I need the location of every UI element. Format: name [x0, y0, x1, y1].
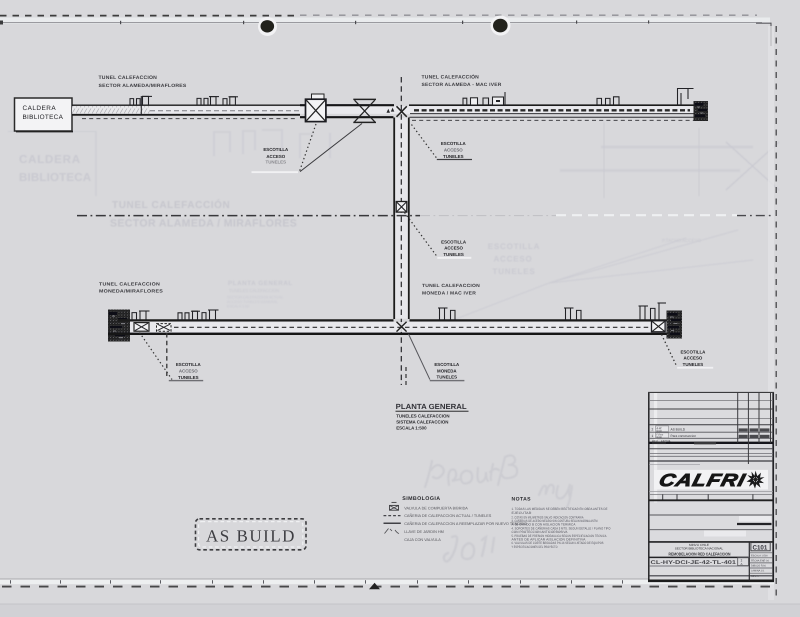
- svg-text:ESCOTILLA: ESCOTILLA: [680, 349, 706, 354]
- svg-text:ACCESO: ACCESO: [684, 356, 703, 361]
- svg-text:ESCOTILLA: ESCOTILLA: [434, 362, 460, 367]
- svg-text:AS BUILD: AS BUILD: [206, 527, 296, 546]
- svg-text:TUNEL CALEFACCION: TUNEL CALEFACCION: [99, 281, 161, 286]
- svg-text:P.TACHO ACCESO: P.TACHO ACCESO: [662, 238, 702, 243]
- svg-text:DIBUJO R.M.: DIBUJO R.M.: [751, 565, 766, 568]
- svg-text:ESCALA 1:500: ESCALA 1:500: [396, 426, 427, 431]
- svg-text:TUNELES: TUNELES: [178, 375, 199, 380]
- svg-text:SECTOR ALAMEDA / MIRAFLORES: SECTOR ALAMEDA / MIRAFLORES: [110, 218, 297, 230]
- svg-text:BIBLIOTECA: BIBLIOTECA: [19, 172, 91, 184]
- svg-text:TUNELES: TUNELES: [493, 267, 536, 276]
- svg-text:AS BUILD: AS BUILD: [671, 427, 686, 431]
- svg-text:CL-HY-DCI-JE-42-TL-401: CL-HY-DCI-JE-42-TL-401: [651, 560, 737, 566]
- svg-text:SECTOR ALAMEDA - MAC IVER: SECTOR ALAMEDA - MAC IVER: [422, 82, 502, 87]
- svg-text:SECTOR ALAMEDA/MIRAFLORES: SECTOR ALAMEDA/MIRAFLORES: [99, 83, 187, 88]
- svg-text:CAÑERIA DE CALEFACCION A REEMP: CAÑERIA DE CALEFACCION A REEMPLAZAR POR …: [404, 521, 527, 526]
- svg-text:CAJA CON VALVULA: CAJA CON VALVULA: [404, 538, 441, 542]
- svg-text:SECTOR CALEFACCION ACTUAL: SECTOR CALEFACCION ACTUAL: [227, 296, 283, 300]
- svg-text:TUNELES: TUNELES: [443, 252, 464, 257]
- svg-text:ACCESO: ACCESO: [179, 368, 198, 373]
- svg-text:CALDERA: CALDERA: [19, 154, 81, 166]
- svg-text:SISTEMA CALEFACCION: SISTEMA CALEFACCION: [396, 420, 448, 425]
- svg-text:TUNELES: TUNELES: [683, 362, 704, 367]
- svg-text:B&B: B&B: [657, 429, 662, 432]
- svg-text:ESCOTILLA: ESCOTILLA: [263, 147, 289, 152]
- svg-text:EJECUTAR: EJECUTAR: [512, 511, 533, 515]
- svg-text:LAMINA 1/1: LAMINA 1/1: [751, 570, 765, 573]
- svg-text:A: A: [740, 562, 742, 566]
- svg-text:Y ESPECIFICACIONES DEL PROYECT: Y ESPECIFICACIONES DEL PROYECTO: [512, 545, 558, 549]
- svg-text:ACCESO: ACCESO: [444, 147, 463, 152]
- svg-text:TUNELES CALEFACCION: TUNELES CALEFACCION: [229, 288, 279, 293]
- svg-text:TUNELES CALEFACCION: TUNELES CALEFACCION: [396, 413, 449, 418]
- svg-text:TUNELES: TUNELES: [266, 160, 287, 165]
- svg-text:CALFRI: CALFRI: [657, 470, 748, 490]
- svg-text:CAÑERIA DE CALEFACCION ACTUAL: CAÑERIA DE CALEFACCION ACTUAL / TUNELES: [404, 513, 492, 518]
- svg-text:MONEDA/MIRAFLORES: MONEDA/MIRAFLORES: [99, 289, 163, 294]
- svg-text:TUNEL CALEFACCIÓN: TUNEL CALEFACCIÓN: [422, 73, 480, 80]
- svg-text:CALDERA: CALDERA: [23, 105, 57, 112]
- svg-text:PLANTA GENERAL: PLANTA GENERAL: [396, 402, 468, 411]
- svg-text:NOTAS: NOTAS: [512, 496, 532, 502]
- svg-text:FECHA ENE-04: FECHA ENE-04: [751, 559, 769, 562]
- svg-text:TUNEL CALEFACCIÓN: TUNEL CALEFACCIÓN: [112, 199, 230, 211]
- svg-text:VALVULA DE COMPUERTA B/BRIDA: VALVULA DE COMPUERTA B/BRIDA: [404, 506, 468, 510]
- svg-text:TUNEL CALEFACCION: TUNEL CALEFACCION: [99, 75, 158, 81]
- svg-text:MONEDA / MAC IVER: MONEDA / MAC IVER: [422, 290, 477, 295]
- svg-text:TUNELES: TUNELES: [437, 375, 458, 380]
- svg-text:1: 1: [652, 434, 654, 438]
- svg-text:ACCESO TUNELES GENERAL: ACCESO TUNELES GENERAL: [227, 300, 278, 304]
- svg-text:BIBLIOTECA: BIBLIOTECA: [23, 114, 64, 121]
- svg-text:SIMBOLOGIA: SIMBOLOGIA: [402, 496, 440, 502]
- svg-text:2: 2: [652, 427, 654, 431]
- svg-text:SECTOR BIBLIOTECA NACIONAL: SECTOR BIBLIOTECA NACIONAL: [675, 547, 724, 551]
- svg-text:TUNEL CALEFACCION: TUNEL CALEFACCION: [422, 283, 481, 288]
- svg-text:ESCOTILLA: ESCOTILLA: [441, 141, 467, 146]
- svg-text:ACCESO: ACCESO: [444, 246, 463, 251]
- svg-text:Para construccion: Para construccion: [671, 434, 697, 438]
- svg-text:PLANTA GENERAL: PLANTA GENERAL: [228, 280, 293, 287]
- svg-text:ESCALA 1:500: ESCALA 1:500: [751, 554, 768, 557]
- svg-text:REMODELACION RED CALEFACCION: REMODELACION RED CALEFACCION: [669, 552, 731, 557]
- svg-text:C101: C101: [753, 544, 768, 551]
- svg-text:ESCOTILLA: ESCOTILLA: [176, 362, 202, 367]
- svg-text:ESCOTILLA: ESCOTILLA: [441, 239, 467, 244]
- svg-text:REV A: REV A: [751, 575, 759, 578]
- svg-text:MONEDA: MONEDA: [437, 368, 457, 373]
- svg-text:ACCESO: ACCESO: [493, 255, 532, 264]
- svg-text:ESCALA 1:50: ESCALA 1:50: [227, 305, 249, 309]
- svg-text:ESCOTILLA: ESCOTILLA: [488, 242, 541, 251]
- svg-text:LLAVE DE JARDIN HM: LLAVE DE JARDIN HM: [404, 530, 444, 534]
- svg-text:TUNELES: TUNELES: [443, 154, 464, 159]
- svg-text:ACCESO: ACCESO: [266, 154, 285, 159]
